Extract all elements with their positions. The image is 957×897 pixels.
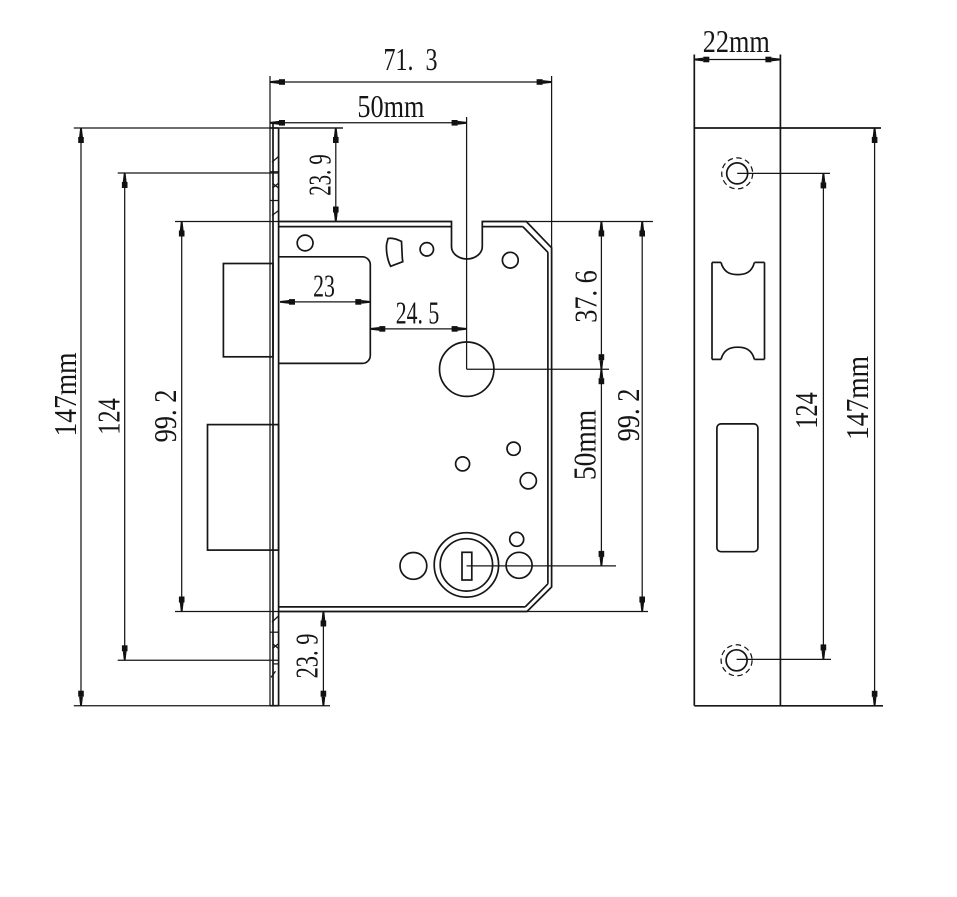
svg-text:99. 2: 99. 2	[149, 390, 184, 443]
svg-text:99. 2: 99. 2	[612, 389, 647, 442]
svg-text:50mm: 50mm	[357, 90, 424, 125]
svg-text:23. 9: 23. 9	[288, 634, 324, 679]
svg-text:124: 124	[790, 392, 825, 428]
svg-text:50mm: 50mm	[568, 410, 603, 480]
svg-text:37. 6: 37. 6	[569, 270, 604, 322]
svg-text:147mm: 147mm	[840, 356, 875, 440]
svg-text:23. 9: 23. 9	[302, 154, 338, 196]
svg-text:22mm: 22mm	[703, 25, 770, 60]
svg-text:24. 5: 24. 5	[396, 295, 440, 330]
svg-text:124: 124	[92, 398, 127, 434]
svg-text:147mm: 147mm	[48, 352, 83, 436]
svg-text:71. 3: 71. 3	[384, 43, 438, 78]
svg-text:23: 23	[313, 268, 335, 303]
